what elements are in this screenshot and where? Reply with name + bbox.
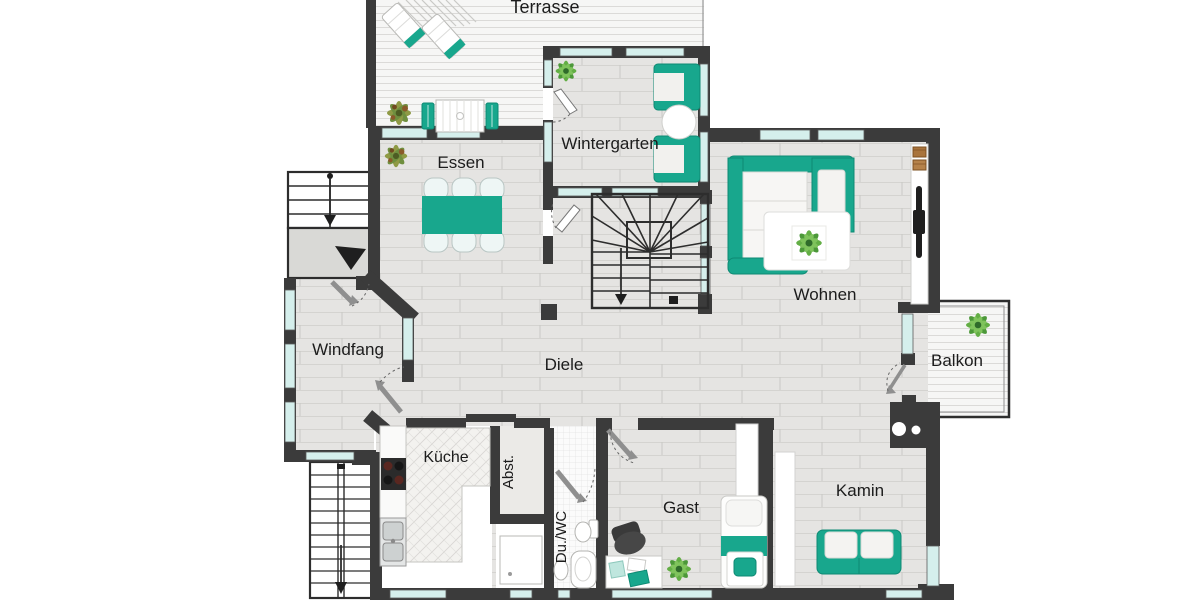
terrace-table-set xyxy=(422,100,498,132)
window xyxy=(760,130,810,140)
plant-gast xyxy=(667,557,691,581)
room-label-duwc: Du./WC xyxy=(553,511,570,564)
kamin-sofa xyxy=(817,530,901,574)
door-opening xyxy=(543,88,553,120)
window xyxy=(626,48,684,56)
window xyxy=(390,590,446,598)
room-label-abst: Abst. xyxy=(500,455,517,489)
room-label-terrasse: Terrasse xyxy=(510,0,579,17)
house-left-wall xyxy=(368,140,380,280)
room-label-windfang: Windfang xyxy=(312,340,384,359)
garden-stairs xyxy=(310,462,372,598)
kitchen-top-wall xyxy=(406,418,466,428)
dining-table xyxy=(422,196,502,234)
terrace-left-wall xyxy=(366,0,376,128)
room-label-kamin: Kamin xyxy=(836,481,884,500)
plant-wintergarten xyxy=(556,61,577,82)
floor-plan-page: Terrasse Wintergarten Essen Wohnen Windf… xyxy=(0,0,1200,600)
window xyxy=(612,590,712,598)
window xyxy=(886,590,922,598)
window xyxy=(544,60,552,86)
column xyxy=(541,304,557,320)
storage-door-leaf xyxy=(466,414,516,422)
room-label-gast: Gast xyxy=(663,498,699,517)
pillow xyxy=(726,500,762,526)
storage-left-wall xyxy=(490,426,500,520)
plant-wohnen xyxy=(796,230,822,256)
entry-stairs xyxy=(288,172,372,278)
window xyxy=(927,546,939,586)
window xyxy=(558,590,570,598)
right-wall-lower xyxy=(926,446,940,546)
window xyxy=(560,48,612,56)
room-label-kueche: Küche xyxy=(423,449,468,466)
toilet xyxy=(575,522,591,542)
room-label-wohnen: Wohnen xyxy=(793,285,856,304)
dining-set xyxy=(422,178,504,252)
window xyxy=(382,128,427,138)
window xyxy=(700,132,708,182)
desk xyxy=(606,556,662,588)
stove xyxy=(381,458,406,490)
plant-terrace xyxy=(387,101,411,125)
balcony-door-glass xyxy=(902,314,913,354)
wardrobe xyxy=(736,424,758,500)
kitchen-sink xyxy=(380,518,406,566)
floor-plan-canvas: Terrasse Wintergarten Essen Wohnen Windf… xyxy=(0,0,1200,600)
window xyxy=(510,590,532,598)
window xyxy=(544,122,552,162)
shower xyxy=(500,536,542,584)
plant-essen xyxy=(385,145,407,167)
window xyxy=(285,402,295,442)
sideboard xyxy=(911,144,928,304)
window xyxy=(285,344,295,388)
room-label-essen: Essen xyxy=(437,153,484,172)
window xyxy=(818,130,864,140)
guest-bed xyxy=(721,496,767,588)
open-door-panel xyxy=(775,452,795,586)
fireplace xyxy=(890,395,940,448)
room-label-diele: Diele xyxy=(545,355,584,374)
door-opening xyxy=(543,210,553,236)
books xyxy=(913,147,926,157)
books xyxy=(913,160,926,170)
plant-balkon xyxy=(966,313,990,337)
window xyxy=(700,64,708,116)
room-label-balkon: Balkon xyxy=(931,351,983,370)
room-label-wintergarten: Wintergarten xyxy=(561,134,658,153)
window xyxy=(306,452,354,460)
round-table xyxy=(662,105,696,139)
window xyxy=(403,318,413,360)
window xyxy=(285,290,295,330)
